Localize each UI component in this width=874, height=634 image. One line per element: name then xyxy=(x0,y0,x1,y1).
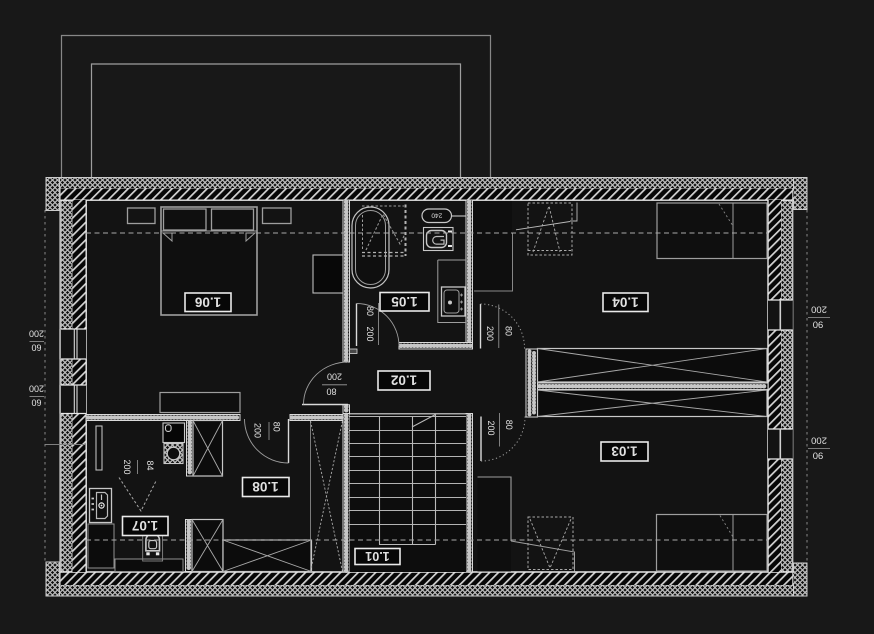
svg-text:1.08: 1.08 xyxy=(252,479,279,494)
svg-text:200: 200 xyxy=(486,420,496,435)
svg-text:200: 200 xyxy=(811,435,827,446)
svg-text:80: 80 xyxy=(504,420,514,430)
svg-text:1.05: 1.05 xyxy=(391,294,418,309)
svg-text:200: 200 xyxy=(485,326,495,341)
svg-text:240: 240 xyxy=(431,211,442,218)
svg-text:1.07: 1.07 xyxy=(132,518,158,533)
svg-text:200: 200 xyxy=(327,372,342,382)
svg-text:1.01: 1.01 xyxy=(365,549,389,563)
svg-text:200: 200 xyxy=(122,459,132,474)
svg-text:90: 90 xyxy=(813,450,824,461)
svg-text:200: 200 xyxy=(365,326,375,341)
svg-text:200: 200 xyxy=(253,423,263,438)
svg-text:1.02: 1.02 xyxy=(391,373,417,388)
svg-text:1.04: 1.04 xyxy=(612,294,639,309)
svg-text:90: 90 xyxy=(813,319,824,330)
svg-text:1.03: 1.03 xyxy=(611,444,638,459)
svg-text:60: 60 xyxy=(31,343,41,353)
svg-text:200: 200 xyxy=(29,329,44,339)
svg-text:200: 200 xyxy=(811,304,827,315)
svg-text:60: 60 xyxy=(31,398,41,408)
svg-text:200: 200 xyxy=(29,384,44,394)
svg-text:80: 80 xyxy=(326,387,336,397)
svg-text:80: 80 xyxy=(272,422,282,432)
svg-text:84: 84 xyxy=(145,460,155,470)
svg-text:80: 80 xyxy=(504,326,514,336)
svg-text:1.06: 1.06 xyxy=(194,294,221,309)
svg-text:80: 80 xyxy=(365,306,375,316)
